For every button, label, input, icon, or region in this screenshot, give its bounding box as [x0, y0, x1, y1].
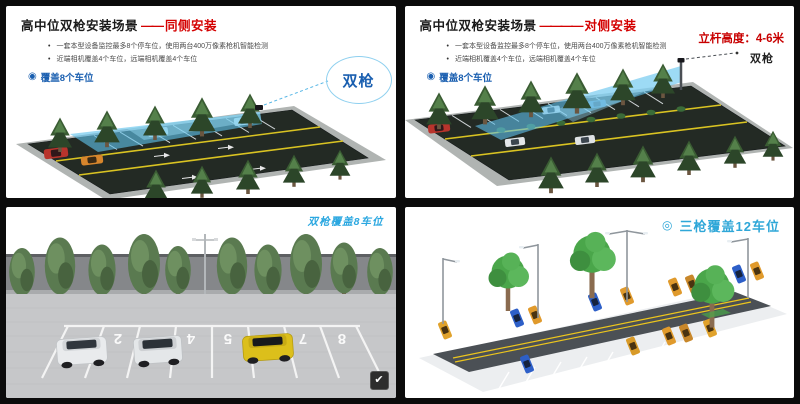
svg-text:8: 8: [338, 330, 346, 347]
slide-collage: 高中位双枪安装场景 —— 同侧安装 • 一套本型设备监控最多8个停车位，使用两台…: [0, 0, 800, 404]
scene-street-view-8-stalls: 2 4 5 7 8: [6, 207, 396, 399]
panel-title: 高中位双枪安装场景: [420, 15, 537, 34]
camera-callout-bubble: 双枪: [326, 56, 392, 104]
title-dash: ——: [141, 19, 162, 33]
caption-three-gun-coverage: ◎ 三枪覆盖12车位: [662, 216, 780, 235]
scene-opposite-side-parking-lot: [405, 48, 795, 198]
panel-title-accent: 对侧安装: [585, 15, 637, 34]
panel-three-gun-12-spaces: ◎ 三枪覆盖12车位: [405, 207, 795, 399]
pole-height-note: 立杆高度：4-6米: [698, 30, 784, 46]
callout-connector: [686, 53, 735, 59]
bullet-text: 近端相机覆盖4个车位，远端相机覆盖4个车位: [56, 54, 197, 67]
camera-callout-label: 双枪: [750, 50, 774, 66]
callout-connector: [264, 81, 328, 105]
bullet-dot-icon: •: [48, 54, 50, 67]
panel-title: 高中位双枪安装场景: [21, 15, 138, 34]
bullet-item: • 一套本型设备监控最多8个停车位，使用两台400万像素枪机智能检测: [48, 41, 396, 54]
car-white-wagon: [133, 335, 183, 367]
svg-text:5: 5: [224, 330, 232, 347]
three-gun-badge-icon: ◎: [662, 218, 673, 232]
panel-title-row: 高中位双枪安装场景 —— 同侧安装: [6, 6, 396, 34]
title-dash: ————: [540, 19, 582, 33]
caption-text: 三枪覆盖12车位: [680, 216, 780, 235]
svg-text:4: 4: [186, 330, 195, 347]
camera-callout-label: 双枪: [342, 70, 374, 91]
checkmark-badge: ✔: [370, 371, 389, 390]
panel-same-side-install: 高中位双枪安装场景 —— 同侧安装 • 一套本型设备监控最多8个停车位，使用两台…: [6, 6, 396, 198]
check-icon: ✔: [374, 375, 383, 386]
car-white-suv: [56, 336, 108, 369]
svg-text:7: 7: [299, 330, 307, 347]
dual-camera: [255, 105, 263, 110]
svg-text:2: 2: [114, 330, 122, 347]
bullet-text: 一套本型设备监控最多8个停车位，使用两台400万像素枪机智能检测: [56, 41, 268, 54]
callout-dot: [735, 51, 738, 54]
car-yellow-sedan: [242, 333, 294, 364]
scene-iso-lot-12-stalls: [405, 207, 795, 399]
panel-opposite-side-install: 高中位双枪安装场景 ———— 对侧安装 立杆高度：4-6米 • 一套本型设备监控…: [405, 6, 795, 198]
bullet-dot-icon: •: [48, 41, 50, 54]
panel-title-accent: 同侧安装: [165, 15, 217, 34]
caption-dual-gun-coverage: 双枪覆盖8车位: [308, 214, 384, 229]
dual-camera: [677, 58, 684, 63]
panel-dual-gun-8-spaces: 2 4 5 7 8: [6, 207, 396, 399]
